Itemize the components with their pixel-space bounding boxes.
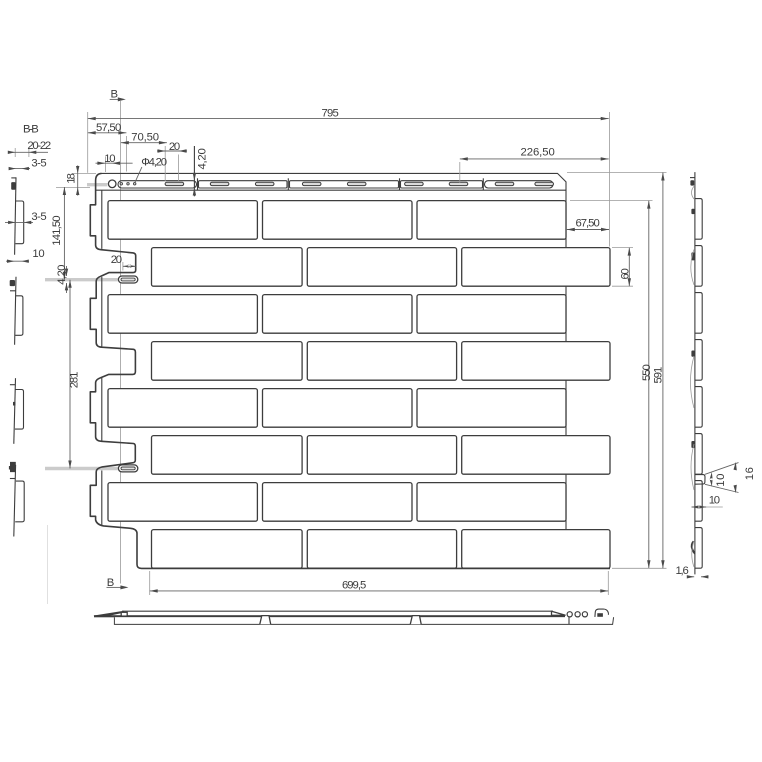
- svg-text:20: 20: [111, 254, 122, 266]
- svg-text:795: 795: [322, 107, 339, 119]
- svg-text:10: 10: [715, 474, 727, 487]
- svg-text:B: B: [111, 89, 118, 101]
- svg-text:3-5: 3-5: [31, 158, 46, 170]
- svg-text:281: 281: [68, 372, 80, 389]
- svg-text:10: 10: [709, 495, 720, 507]
- svg-text:141,50: 141,50: [51, 216, 63, 246]
- svg-text:18: 18: [65, 173, 77, 184]
- svg-text:16: 16: [744, 467, 756, 480]
- svg-text:57,50: 57,50: [96, 122, 121, 134]
- svg-text:4,20: 4,20: [56, 265, 68, 285]
- svg-text:591: 591: [652, 367, 664, 384]
- svg-text:550: 550: [641, 365, 653, 382]
- svg-text:226,50: 226,50: [521, 146, 555, 158]
- svg-text:60: 60: [620, 269, 632, 280]
- svg-text:1,6: 1,6: [676, 565, 689, 577]
- svg-text:70,50: 70,50: [131, 132, 159, 144]
- svg-text:20: 20: [169, 141, 180, 153]
- svg-text:10: 10: [104, 153, 115, 165]
- svg-text:20-22: 20-22: [27, 140, 51, 152]
- svg-text:10: 10: [32, 248, 44, 260]
- svg-text:4,20: 4,20: [197, 149, 209, 170]
- svg-text:67,50: 67,50: [576, 218, 600, 230]
- svg-text:Ф4,20: Ф4,20: [141, 157, 167, 169]
- svg-text:699,5: 699,5: [342, 579, 366, 591]
- svg-text:B-B: B-B: [23, 124, 39, 136]
- svg-text:3-5: 3-5: [31, 211, 46, 223]
